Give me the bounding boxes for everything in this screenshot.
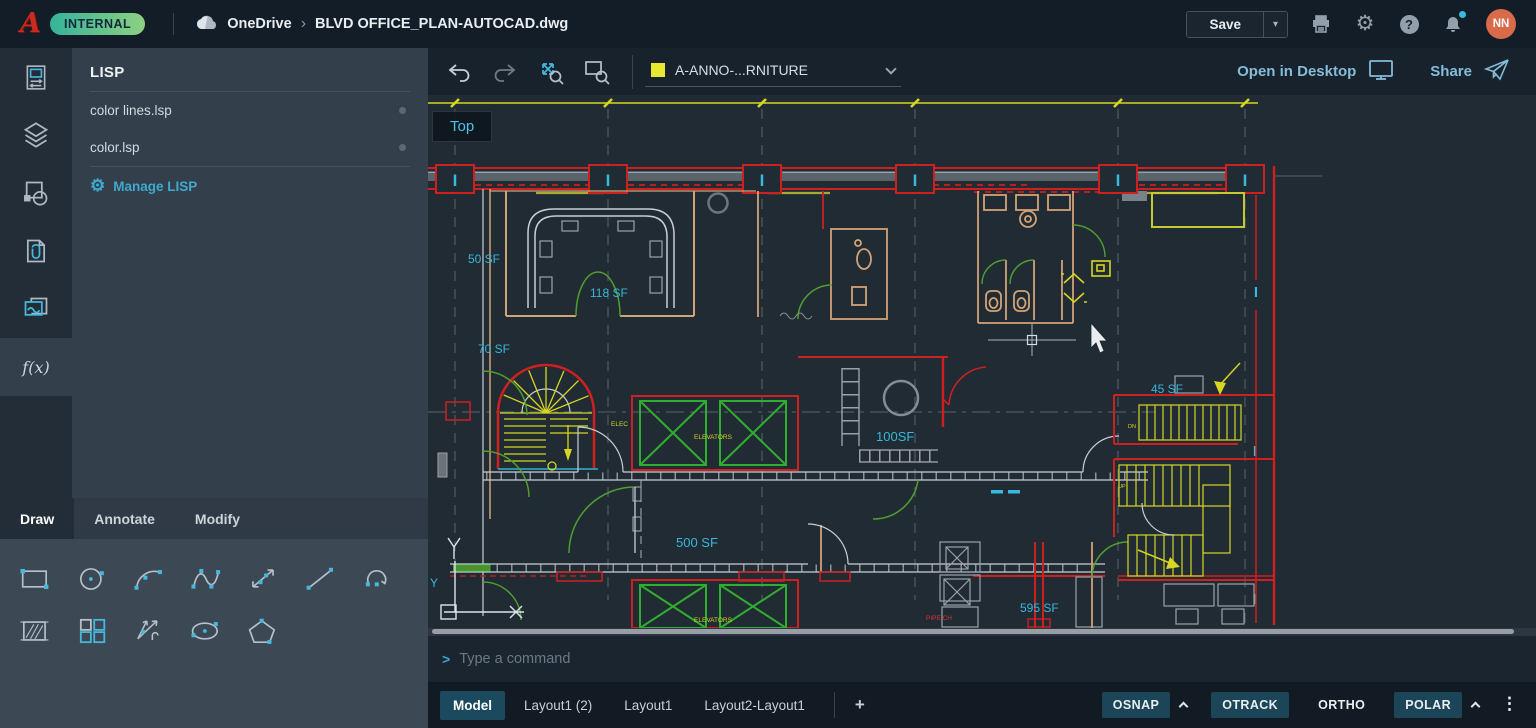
layer-color-swatch [651, 63, 665, 77]
undo-icon[interactable] [444, 58, 474, 86]
circle-tool-icon[interactable] [63, 553, 120, 605]
lisp-panel-title: LISP [72, 48, 428, 91]
layer-dropdown[interactable]: A-ANNO-...RNITURE [645, 56, 901, 87]
open-in-desktop-link[interactable]: Open in Desktop [1237, 63, 1356, 80]
lisp-item-status-dot [399, 144, 406, 151]
tab-model[interactable]: Model [440, 691, 505, 720]
svg-text:I: I [606, 171, 611, 190]
images-panel-icon[interactable] [0, 280, 72, 338]
command-bar[interactable]: > Type a command [428, 635, 1536, 682]
divider [834, 692, 835, 718]
canvas-column: A-ANNO-...RNITURE Open in Desktop Share … [428, 48, 1536, 728]
autocad-logo-icon[interactable]: A [20, 9, 46, 39]
dn-label: DN [1128, 424, 1136, 430]
tool-panel-tabs: Draw Annotate Modify [0, 498, 428, 539]
polar-chevron-icon[interactable] [1471, 702, 1481, 712]
area-label: 70 SF [478, 342, 510, 356]
zoom-window-icon[interactable] [582, 58, 612, 86]
area-label: 500 SF [676, 535, 718, 550]
redo-icon[interactable] [490, 58, 520, 86]
tab-layout2-layout1[interactable]: Layout2-Layout1 [691, 691, 818, 720]
lisp-item-status-dot [399, 107, 406, 114]
chevron-down-icon [885, 63, 896, 74]
mouse-pointer [1091, 323, 1107, 353]
save-split-button: Save ▾ [1186, 11, 1288, 38]
elec-label: ELEC [611, 421, 628, 428]
svg-text:I: I [453, 171, 458, 190]
file-name[interactable]: BLVD OFFICE_PLAN-AUTOCAD.dwg [315, 16, 568, 32]
save-menu-caret[interactable]: ▾ [1263, 12, 1287, 37]
breadcrumb: OneDrive › BLVD OFFICE_PLAN-AUTOCAD.dwg [196, 15, 568, 34]
top-bar: A INTERNAL OneDrive › BLVD OFFICE_PLAN-A… [0, 0, 1536, 48]
horizontal-scrollbar[interactable] [428, 628, 1536, 635]
notifications-bell-icon[interactable] [1442, 13, 1464, 35]
notification-dot [1459, 11, 1466, 18]
left-icon-rail: f(x) [0, 48, 72, 498]
crosshair-cursor [988, 324, 1076, 356]
pipe-chase-label: PIPE CH [926, 615, 952, 622]
osnap-chevron-icon[interactable] [1179, 702, 1189, 712]
tab-layout1[interactable]: Layout1 [611, 691, 685, 720]
blocks-panel-icon[interactable] [0, 164, 72, 222]
area-label: 50 SF [468, 252, 500, 266]
divider [173, 13, 174, 35]
svg-text:I: I [1243, 171, 1248, 190]
help-icon[interactable]: ? [1398, 13, 1420, 35]
share-button[interactable]: Share [1430, 63, 1472, 80]
xrefs-panel-icon[interactable] [0, 222, 72, 280]
draw-tools-grid [0, 539, 428, 657]
spline-tool-icon[interactable] [177, 553, 234, 605]
array-tool-icon[interactable] [63, 605, 120, 657]
svg-text:I: I [1254, 284, 1258, 301]
rectangle-tool-icon[interactable] [6, 553, 63, 605]
floor-plan: III III III [428, 95, 1536, 628]
svg-text:I: I [913, 171, 918, 190]
ucs-y-label: Y [430, 576, 438, 590]
tab-draw[interactable]: Draw [0, 498, 74, 539]
arc-tool-icon[interactable] [120, 553, 177, 605]
manage-lisp-link[interactable]: ⚙ Manage LISP [72, 167, 428, 205]
draw-tool-panel: Draw Annotate Modify [0, 498, 428, 728]
area-label: 45 SF [1151, 382, 1183, 396]
construction-line-tool-icon[interactable] [234, 553, 291, 605]
area-label: 118 SF [590, 286, 628, 300]
command-prompt-icon: > [442, 651, 450, 667]
drawing-viewport[interactable]: Top [428, 95, 1536, 635]
add-layout-button[interactable]: + [845, 695, 875, 715]
divider [632, 55, 633, 89]
print-icon[interactable] [1310, 13, 1332, 35]
elevators-label: ELEVATORS [694, 617, 733, 624]
ray-tool-icon[interactable] [120, 605, 177, 657]
onedrive-cloud-icon [196, 15, 218, 34]
tab-layout1-2[interactable]: Layout1 (2) [511, 691, 605, 720]
svg-text:I: I [1116, 171, 1121, 190]
zoom-extents-icon[interactable] [536, 58, 566, 86]
save-button[interactable]: Save [1187, 12, 1263, 37]
paper-plane-icon[interactable] [1484, 58, 1510, 86]
area-label: 595 SF [1020, 601, 1059, 615]
breadcrumb-provider[interactable]: OneDrive [227, 16, 291, 32]
internal-badge: INTERNAL [50, 13, 145, 35]
start-arc-tool-icon[interactable] [348, 553, 405, 605]
breadcrumb-separator: › [301, 15, 306, 33]
layout-tab-bar: Model Layout1 (2) Layout1 Layout2-Layout… [428, 682, 1536, 728]
command-input[interactable]: Type a command [459, 651, 570, 667]
hatch-tool-icon[interactable] [6, 605, 63, 657]
lisp-panel-icon[interactable]: f(x) [0, 338, 72, 396]
manage-gear-icon: ⚙ [90, 178, 105, 194]
settings-gear-icon[interactable]: ⚙ [1354, 13, 1376, 35]
overflow-menu-icon[interactable]: ⋮ [1493, 694, 1522, 716]
ellipse-tool-icon[interactable] [177, 605, 234, 657]
view-cube-label[interactable]: Top [432, 111, 492, 142]
elevators-label: ELEVATORS [694, 434, 733, 441]
tab-annotate[interactable]: Annotate [74, 498, 175, 539]
scrollbar-thumb[interactable] [432, 629, 1514, 634]
line-tool-icon[interactable] [291, 553, 348, 605]
layers-panel-icon[interactable] [0, 106, 72, 164]
desktop-monitor-icon[interactable] [1368, 58, 1394, 86]
osnap-toggle[interactable]: OSNAP [1102, 692, 1170, 718]
svg-text:I: I [760, 171, 765, 190]
area-label: 100SF [876, 429, 914, 444]
otrack-toggle[interactable]: OTRACK [1211, 692, 1289, 718]
avatar[interactable]: NN [1486, 9, 1516, 39]
ortho-toggle[interactable]: ORTHO [1307, 692, 1376, 718]
lisp-item[interactable]: color.lsp [72, 129, 428, 166]
canvas-toolbar: A-ANNO-...RNITURE Open in Desktop Share [428, 48, 1536, 95]
lisp-panel: LISP color lines.lsp color.lsp ⚙ Manage … [72, 48, 428, 498]
drawing-panel-icon[interactable] [0, 48, 72, 106]
polygon-tool-icon[interactable] [234, 605, 291, 657]
polar-toggle[interactable]: POLAR [1394, 692, 1462, 718]
up-label: UP [1118, 484, 1126, 490]
layer-name: A-ANNO-...RNITURE [675, 62, 808, 78]
lisp-item[interactable]: color lines.lsp [72, 92, 428, 129]
tab-modify[interactable]: Modify [175, 498, 260, 539]
